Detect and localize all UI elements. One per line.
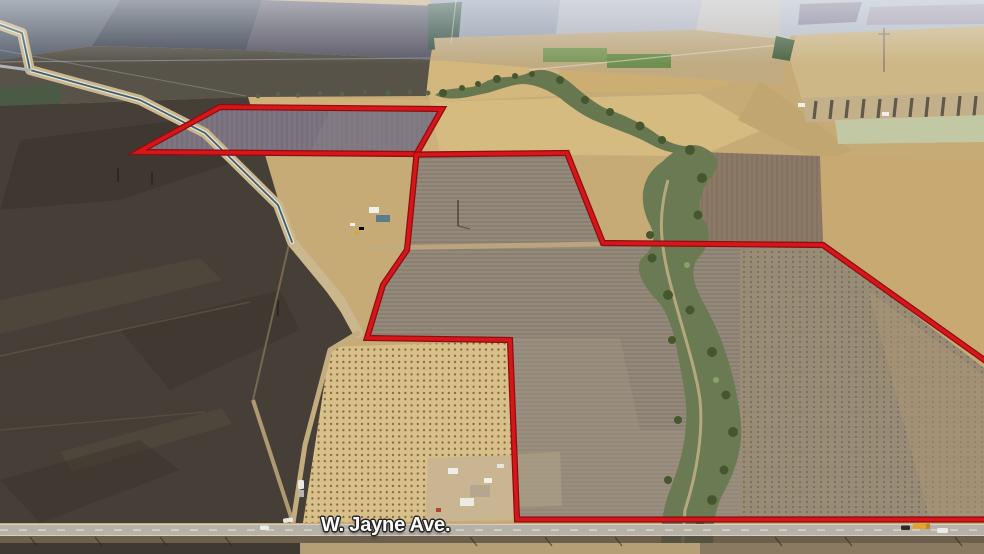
vehicle-white-van: [937, 528, 948, 533]
aerial-photo-stage: W. Jayne Ave.: [0, 0, 984, 554]
construction-site: [425, 455, 516, 521]
haze: [0, 0, 984, 64]
road: [0, 524, 984, 554]
vehicle-white-truck: [298, 480, 304, 489]
orchard: [303, 341, 516, 523]
vehicle-dark-car: [901, 526, 910, 531]
vineyard-block: [700, 152, 823, 245]
aerial-photo: [0, 0, 984, 554]
street-label: W. Jayne Ave.: [321, 514, 450, 537]
